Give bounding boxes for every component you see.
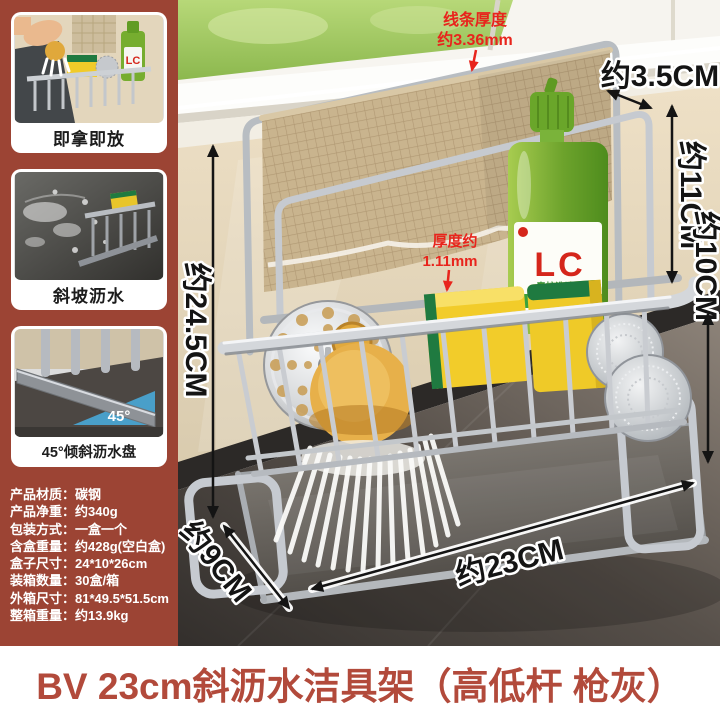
- spec-row: 外箱尺寸： 81*49.5*51.5cm: [10, 590, 176, 607]
- rack-bar: [41, 329, 50, 377]
- feature-card-slope-drain: 斜坡沥水: [11, 169, 167, 310]
- spec-row: 装箱数量： 30盒/箱: [10, 572, 176, 589]
- spec-label: 含盒重量：: [10, 538, 75, 555]
- spec-value: 碳钢: [75, 486, 101, 503]
- spec-label: 盒子尺寸：: [10, 555, 75, 572]
- feature-card-grab-and-place: LC 即拿即放: [11, 12, 167, 153]
- dim-wire-thickness-line2: 约3.36mm: [437, 30, 513, 49]
- spec-label: 产品材质：: [10, 486, 75, 503]
- product-photo: LC 青柠洗洁精 柠檬原液去油: [178, 0, 720, 646]
- spec-row: 含盒重量： 约428g(空白盒): [10, 538, 176, 555]
- product-title: BV 23cm斜沥水洁具架（高低杆 枪灰）: [36, 656, 684, 710]
- feature-card-tilt-tray: 45° 45°倾斜沥水盘: [11, 326, 167, 467]
- feature-image-tilt-tray: 45°: [14, 329, 164, 437]
- spec-label: 整箱重量：: [10, 607, 75, 624]
- dim-plate-thickness-line1: 厚度约: [432, 232, 477, 250]
- spec-value: 81*49.5*51.5cm: [75, 590, 169, 607]
- dim-hook-gap: 约3.5CM: [601, 60, 719, 93]
- product-specs-panel: 产品材质： 碳钢 产品净重： 约340g 包装方式： 一盒一个 含盒重量： 约4…: [10, 486, 176, 624]
- feature-image-grab-and-place: LC: [14, 15, 164, 123]
- spec-value: 约13.9kg: [75, 607, 128, 624]
- soap-brand-label: LC: [534, 246, 585, 284]
- spec-label: 外箱尺寸：: [10, 590, 75, 607]
- dim-wire-thickness-line1: 线条厚度: [443, 10, 508, 29]
- spec-row: 产品材质： 碳钢: [10, 486, 176, 503]
- feature-caption: 斜坡沥水: [14, 282, 164, 307]
- feature-caption: 即拿即放: [14, 125, 164, 150]
- spec-value: 30盒/箱: [75, 572, 119, 589]
- water-splash: [23, 202, 67, 222]
- spec-value: 约340g: [75, 503, 118, 520]
- dim-plate-thickness-line2: 1.11mm: [422, 253, 477, 270]
- spec-label: 包装方式：: [10, 521, 75, 538]
- product-title-banner: BV 23cm斜沥水洁具架（高低杆 枪灰）: [0, 646, 720, 720]
- angle-label: 45°: [108, 408, 131, 425]
- spec-row: 盒子尺寸： 24*10*26cm: [10, 555, 176, 572]
- spec-label: 装箱数量：: [10, 572, 75, 589]
- sponges: [424, 280, 608, 393]
- spec-row: 产品净重： 约340g: [10, 503, 176, 520]
- hand-towel: [72, 15, 116, 53]
- spec-value: 24*10*26cm: [75, 555, 147, 572]
- dim-lower-height: 约10CM: [689, 211, 720, 321]
- spec-value: 约428g(空白盒): [75, 538, 165, 555]
- product-infographic: LC 即拿即放: [0, 0, 720, 720]
- dim-total-height: 约24.5CM: [179, 262, 212, 397]
- spec-row: 包装方式： 一盒一个: [10, 521, 176, 538]
- feature-sidebar: LC 即拿即放: [0, 0, 178, 646]
- feature-image-slope-drain: [14, 172, 164, 280]
- soap-brand-label: LC: [126, 55, 141, 67]
- spec-label: 产品净重：: [10, 503, 75, 520]
- spec-row: 整箱重量： 约13.9kg: [10, 607, 176, 624]
- feature-caption: 45°倾斜沥水盘: [14, 439, 164, 464]
- spec-value: 一盒一个: [75, 521, 127, 538]
